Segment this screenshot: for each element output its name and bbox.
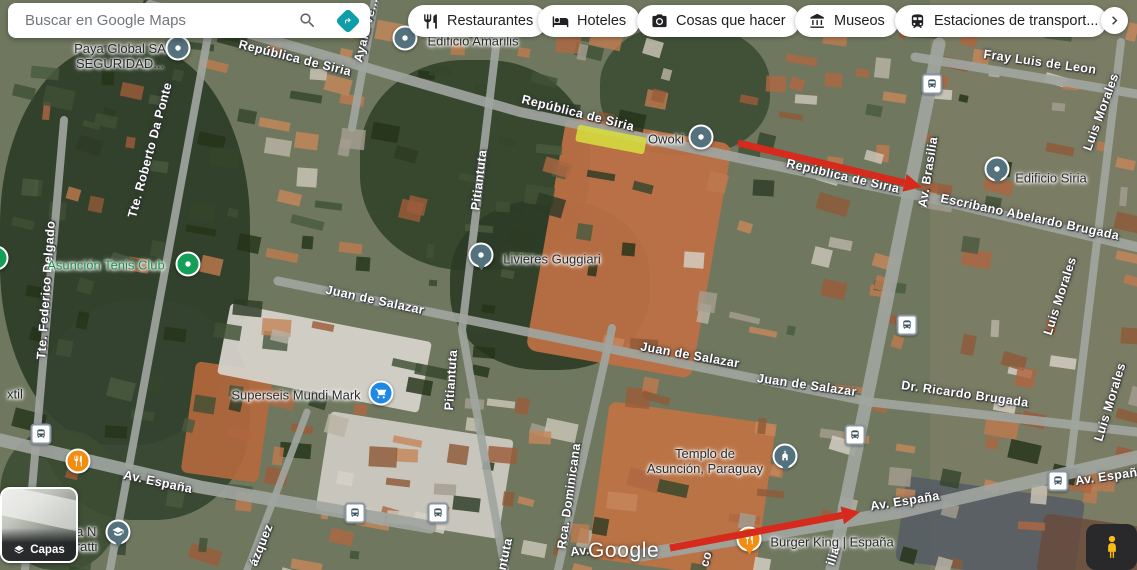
layers-control[interactable]: Capas (0, 487, 78, 563)
poi-marker-ca-n-eratti[interactable] (106, 520, 131, 545)
poi-marker-dot[interactable] (0, 246, 9, 271)
pegman-icon (1099, 534, 1125, 560)
museum-icon (809, 13, 826, 30)
chip-restaurantes[interactable]: Restaurantes (408, 5, 547, 37)
pegman-control[interactable] (1086, 524, 1137, 570)
chevron-right-icon (1107, 13, 1122, 28)
chip-hoteles[interactable]: Hoteles (538, 5, 640, 37)
poi-label-edificio-siria[interactable]: Edificio Siria (1015, 171, 1087, 186)
poi-marker-fork[interactable] (66, 449, 91, 474)
dot-icon (182, 258, 195, 271)
search-icon (298, 11, 317, 30)
poi-label-paya-global-sa-seguridad[interactable]: Paya Global SASEGURIDAD... (74, 41, 166, 71)
dot-icon (475, 249, 488, 262)
dot-icon (991, 163, 1004, 176)
chip-label: Museos (834, 13, 885, 29)
fork-icon (743, 533, 756, 546)
pin-tail (112, 539, 124, 548)
poi-layer: Paya Global SASEGURIDAD...Edificio Amari… (0, 0, 1137, 570)
train-icon (909, 13, 926, 30)
dot-icon (695, 131, 708, 144)
google-watermark: Google (588, 539, 659, 563)
pin-tail (779, 463, 791, 472)
layers-icon (13, 544, 25, 556)
chip-cosas-que-hacer[interactable]: Cosas que hacer (637, 5, 800, 37)
pin-tail (475, 262, 487, 271)
poi-marker-edificio-siria[interactable] (985, 157, 1010, 182)
search-button[interactable] (288, 3, 326, 38)
poi-marker-templo-de-asunci-n-paraguay[interactable] (773, 444, 798, 469)
hotel-icon (552, 13, 569, 30)
dot-icon (0, 252, 3, 265)
poi-marker-owoki[interactable] (689, 125, 714, 150)
chip-label: Hoteles (577, 13, 626, 29)
search-input[interactable] (23, 11, 288, 30)
cap-icon (112, 526, 125, 539)
poi-marker-asunci-n-tenis-club[interactable] (176, 252, 201, 277)
poi-label-burger-king-espa-a[interactable]: Burger King | España (770, 535, 893, 550)
poi-label-livieres-guggiari[interactable]: Livieres Guggiari (503, 252, 601, 267)
dot-icon (172, 42, 185, 55)
poi-label-asunci-n-tenis-club[interactable]: Asunción Tenis Club (47, 258, 165, 273)
map-canvas[interactable]: República de SiriaRepública de SiriaRepú… (0, 0, 1137, 570)
poi-label-owoki[interactable]: Owoki (648, 132, 684, 147)
poi-label-templo-de-asunci-n-paraguay[interactable]: Templo deAsunción, Paraguay (647, 446, 763, 476)
chip-label: Cosas que hacer (676, 13, 786, 29)
cart-icon (375, 387, 388, 400)
search-bar (8, 3, 370, 38)
poi-marker-paya-global-sa-seguridad[interactable] (166, 36, 191, 61)
pin-tail (743, 546, 755, 555)
chips-more-button[interactable] (1101, 7, 1128, 34)
chip-museos[interactable]: Museos (795, 5, 899, 37)
poi-marker-livieres-guggiari[interactable] (469, 243, 494, 268)
chip-label: Restaurantes (447, 13, 533, 29)
chip-estaciones-de-transporte[interactable]: Estaciones de transport... (895, 5, 1107, 37)
restaurant-icon (422, 13, 439, 30)
church-icon (779, 450, 792, 463)
directions-button[interactable] (326, 3, 370, 38)
camera-icon (651, 13, 668, 30)
fork-icon (72, 455, 85, 468)
poi-label-superseis-mundi-mark[interactable]: Superseis Mundi Mark (231, 388, 360, 403)
chip-label: Estaciones de transport... (934, 13, 1098, 29)
dot-icon (399, 32, 412, 45)
directions-icon (335, 8, 360, 33)
poi-label-xtil[interactable]: xtil (7, 387, 23, 402)
poi-marker-superseis-mundi-mark[interactable] (369, 381, 394, 406)
layers-label: Capas (30, 544, 65, 556)
pin-tail (991, 176, 1003, 185)
poi-marker-burger-king-espa-a[interactable] (737, 527, 762, 552)
